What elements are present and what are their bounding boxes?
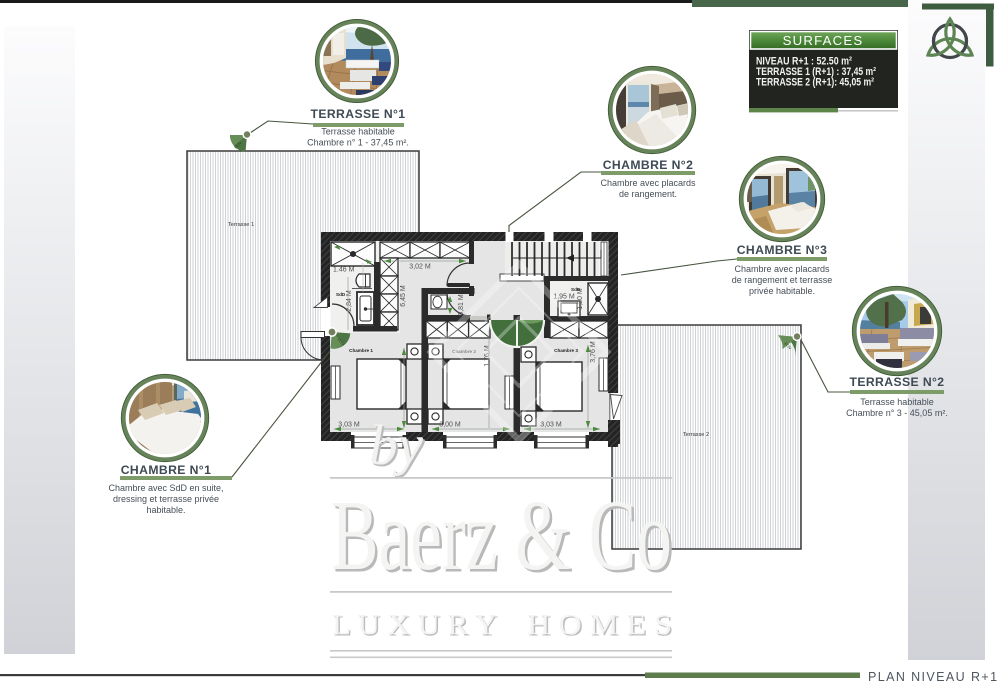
svg-text:3,02 M: 3,02 M bbox=[409, 264, 431, 271]
svg-text:Terrasse habitable: Terrasse habitable bbox=[860, 397, 934, 407]
svg-text:Chambre 3: Chambre 3 bbox=[554, 348, 578, 353]
svg-text:habitable.: habitable. bbox=[146, 505, 185, 515]
svg-text:L U X U R Y: L U X U R Y bbox=[332, 609, 497, 641]
svg-text:Chambre n° 1 - 37,45 m².: Chambre n° 1 - 37,45 m². bbox=[307, 138, 409, 148]
svg-text:Terrasse 2: Terrasse 2 bbox=[683, 432, 709, 438]
svg-text:2,84 M: 2,84 M bbox=[346, 290, 353, 312]
svg-text:TERRASSE 2 (R+1): 45,05 m²: TERRASSE 2 (R+1): 45,05 m² bbox=[756, 77, 874, 89]
svg-text:Baerz & Co: Baerz & Co bbox=[331, 479, 672, 591]
svg-text:6,45 M: 6,45 M bbox=[400, 285, 407, 307]
svg-text:privée habitable.: privée habitable. bbox=[749, 286, 815, 296]
svg-text:CHAMBRE N°2: CHAMBRE N°2 bbox=[603, 158, 694, 172]
svg-text:Chambre 1: Chambre 1 bbox=[349, 348, 373, 353]
svg-text:Chambre avec placards: Chambre avec placards bbox=[734, 264, 830, 274]
svg-text:SdD: SdD bbox=[336, 292, 346, 297]
svg-text:H O M E S: H O M E S bbox=[527, 609, 672, 641]
svg-text:3,00 M: 3,00 M bbox=[439, 422, 461, 429]
svg-text:3,03 M: 3,03 M bbox=[338, 422, 360, 429]
svg-text:de rangement et terrasse: de rangement et terrasse bbox=[732, 275, 833, 285]
svg-text:dressing et terrasse privée: dressing et terrasse privée bbox=[113, 494, 219, 504]
svg-text:by: by bbox=[369, 414, 424, 477]
svg-text:Chambre n° 3 - 45,05 m².: Chambre n° 3 - 45,05 m². bbox=[846, 408, 948, 418]
svg-text:Chambre avec SdD en suite,: Chambre avec SdD en suite, bbox=[108, 483, 223, 493]
svg-text:1.46 M: 1.46 M bbox=[333, 267, 355, 274]
svg-text:PLAN NIVEAU R+1: PLAN NIVEAU R+1 bbox=[868, 670, 998, 684]
svg-text:TERRASSE N°2: TERRASSE N°2 bbox=[849, 375, 944, 389]
svg-text:CHAMBRE N°1: CHAMBRE N°1 bbox=[121, 463, 212, 477]
svg-text:Terrasse 1: Terrasse 1 bbox=[228, 222, 254, 228]
svg-text:de rangement.: de rangement. bbox=[619, 189, 677, 199]
svg-text:TERRASSE N°1: TERRASSE N°1 bbox=[310, 107, 405, 121]
svg-text:CHAMBRE N°3: CHAMBRE N°3 bbox=[737, 243, 828, 257]
svg-text:Chambre avec placards: Chambre avec placards bbox=[600, 178, 696, 188]
svg-text:Terrasse habitable: Terrasse habitable bbox=[321, 127, 395, 137]
svg-text:0,81 M: 0,81 M bbox=[458, 294, 465, 316]
svg-text:SdD: SdD bbox=[571, 287, 581, 292]
svg-text:SURFACES: SURFACES bbox=[783, 33, 864, 48]
svg-text:3,03 M: 3,03 M bbox=[540, 422, 562, 429]
